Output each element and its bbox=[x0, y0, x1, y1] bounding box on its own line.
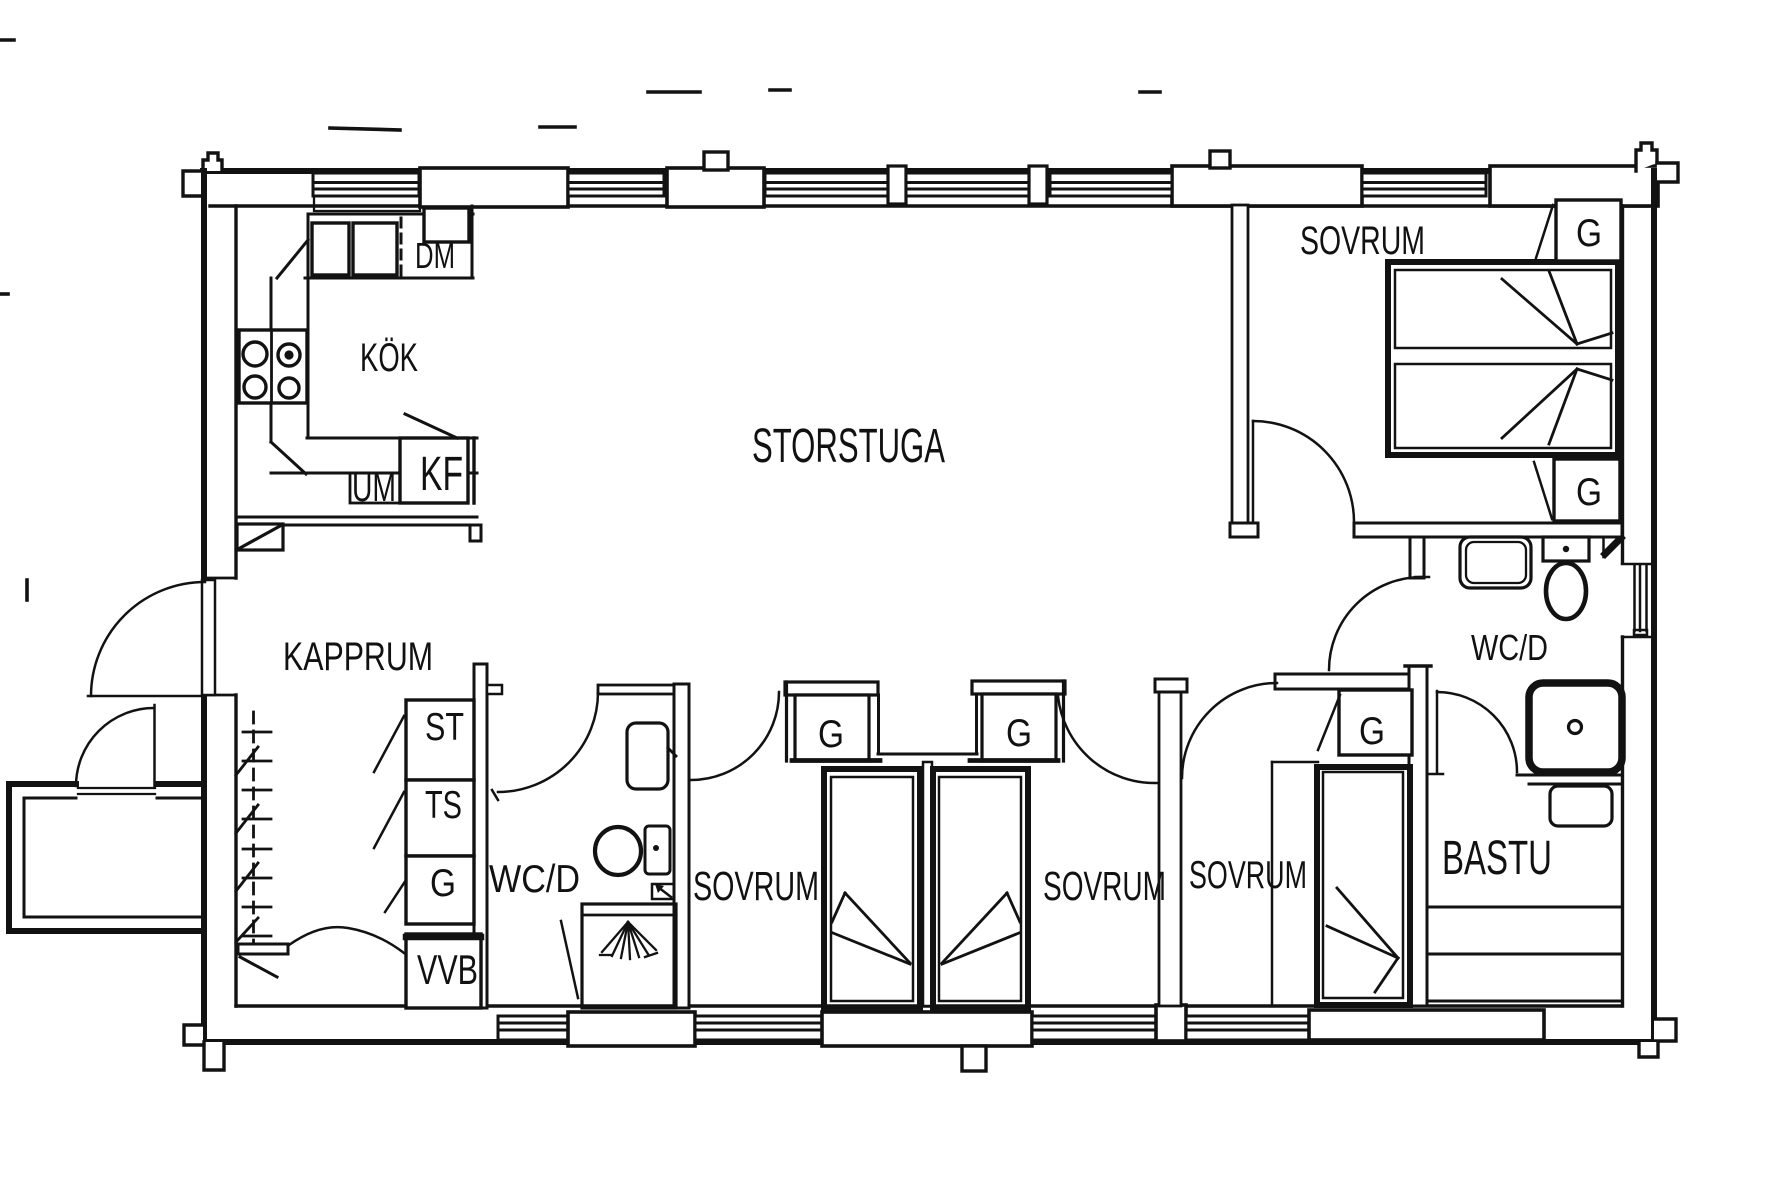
svg-text:SOVRUM: SOVRUM bbox=[1189, 854, 1307, 897]
svg-text:G: G bbox=[818, 713, 844, 756]
svg-text:KÖK: KÖK bbox=[360, 336, 418, 380]
svg-text:SOVRUM: SOVRUM bbox=[693, 863, 819, 909]
svg-text:UM: UM bbox=[352, 466, 396, 510]
svg-text:SOVRUM: SOVRUM bbox=[1043, 863, 1166, 909]
svg-text:VVB: VVB bbox=[417, 946, 478, 993]
svg-text:TS: TS bbox=[425, 784, 462, 827]
svg-text:WC/D: WC/D bbox=[489, 858, 580, 901]
svg-text:G: G bbox=[1359, 710, 1385, 753]
svg-text:G: G bbox=[1576, 212, 1602, 255]
svg-text:KAPPRUM: KAPPRUM bbox=[283, 635, 433, 679]
svg-text:KF: KF bbox=[420, 448, 463, 501]
svg-text:BASTU: BASTU bbox=[1442, 832, 1552, 885]
svg-text:WC/D: WC/D bbox=[1471, 627, 1548, 668]
svg-text:ST: ST bbox=[425, 706, 464, 749]
svg-text:G: G bbox=[1576, 471, 1602, 514]
svg-text:G: G bbox=[1006, 712, 1032, 755]
svg-text:SOVRUM: SOVRUM bbox=[1300, 219, 1425, 263]
svg-text:STORSTUGA: STORSTUGA bbox=[752, 420, 945, 473]
svg-text:DM: DM bbox=[415, 235, 455, 276]
svg-text:G: G bbox=[430, 862, 456, 905]
